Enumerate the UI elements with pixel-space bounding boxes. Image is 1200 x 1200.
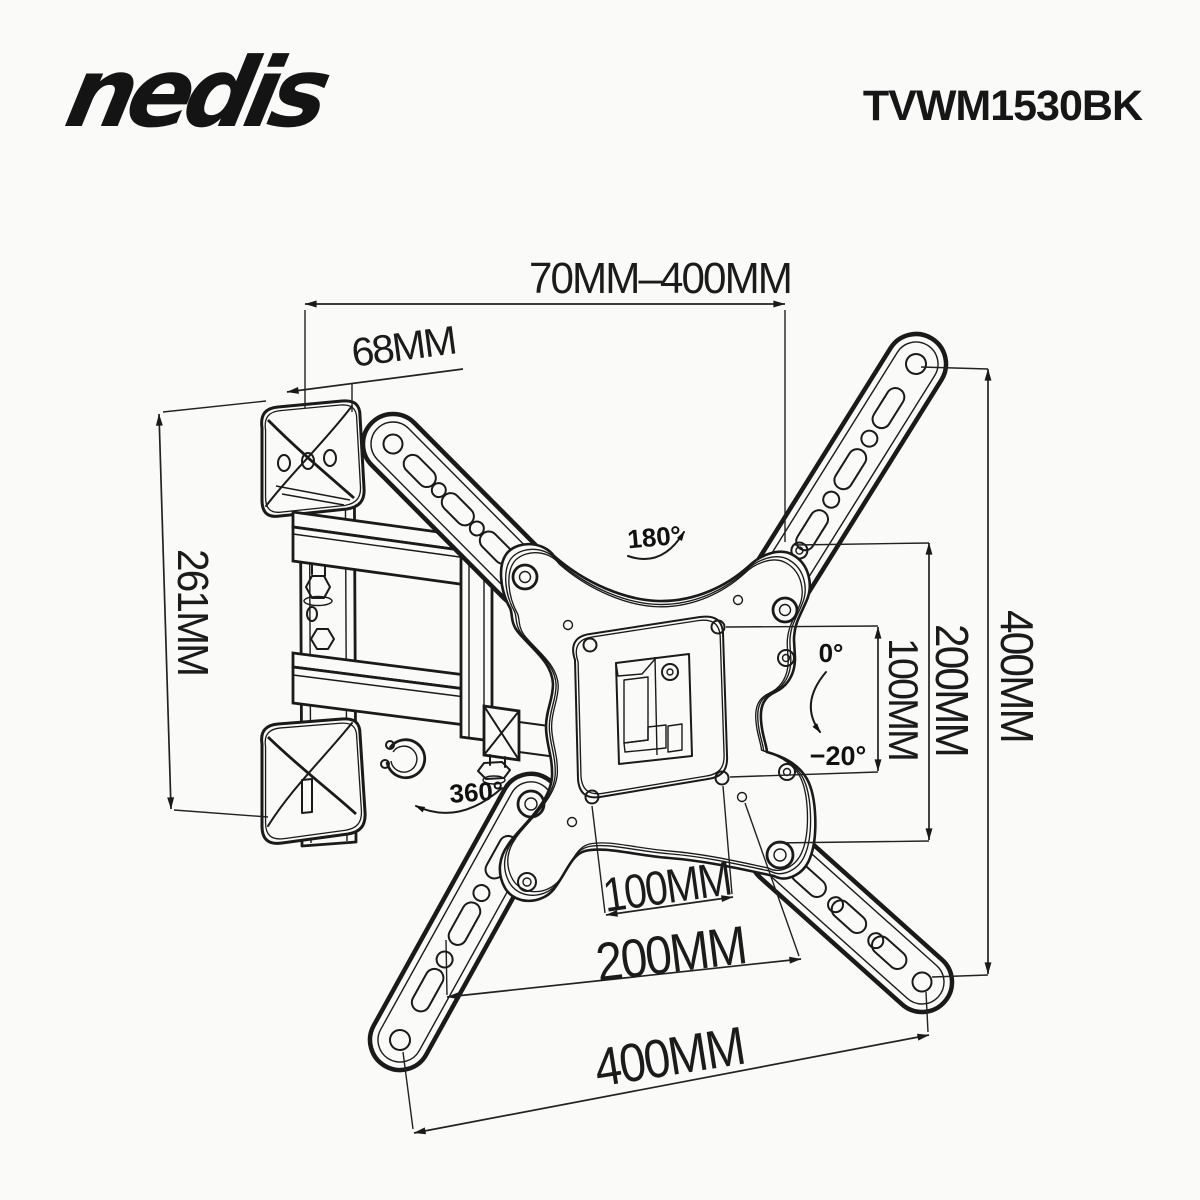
wall-plate-top: [262, 401, 364, 517]
dim-label-extension-range: 70MM–400MM: [529, 254, 791, 303]
dim-label-hole-width-400: 400MM: [590, 1016, 748, 1099]
wall-mount-diagram: nedis TVWM1530BK: [0, 0, 1200, 1200]
product-diagram-page: nedis TVWM1530BK: [0, 0, 1200, 1200]
annotation-rotation-360: 360°: [416, 775, 504, 813]
circlip-detail: [381, 740, 425, 778]
dim-wall-bracket-height: 261MM: [159, 401, 268, 817]
dim-wall-bracket-width: 68MM: [287, 319, 463, 412]
elbow-joint: [478, 706, 549, 784]
annotation-tilt: 0° −20°: [810, 638, 867, 771]
wall-plate-bottom: [262, 719, 365, 844]
tilt-up-label: 0°: [819, 638, 844, 668]
dim-arm-extension-range: 70MM–400MM: [305, 254, 791, 542]
annotation-swivel-180: 180°: [626, 520, 684, 559]
dim-label-vesa-width-100: 100MM: [600, 853, 734, 923]
dim-label-hole-height-400: 400MM: [991, 610, 1043, 742]
dim-hole-width-400: 400MM: [403, 992, 929, 1133]
dim-label-hole-width-200: 200MM: [593, 915, 749, 993]
dim-label-hole-height-200: 200MM: [926, 624, 978, 756]
dim-label-bracket-height: 261MM: [168, 549, 217, 675]
dim-label-vesa-height-100: 100MM: [880, 638, 927, 760]
wall-bracket: [262, 401, 365, 846]
swivel-angle-label: 180°: [626, 520, 682, 555]
dim-label-bracket-width: 68MM: [349, 319, 458, 376]
brand-logo: nedis: [57, 37, 338, 149]
product-model: TVWM1530BK: [863, 82, 1143, 130]
tilt-down-label: −20°: [810, 741, 867, 771]
